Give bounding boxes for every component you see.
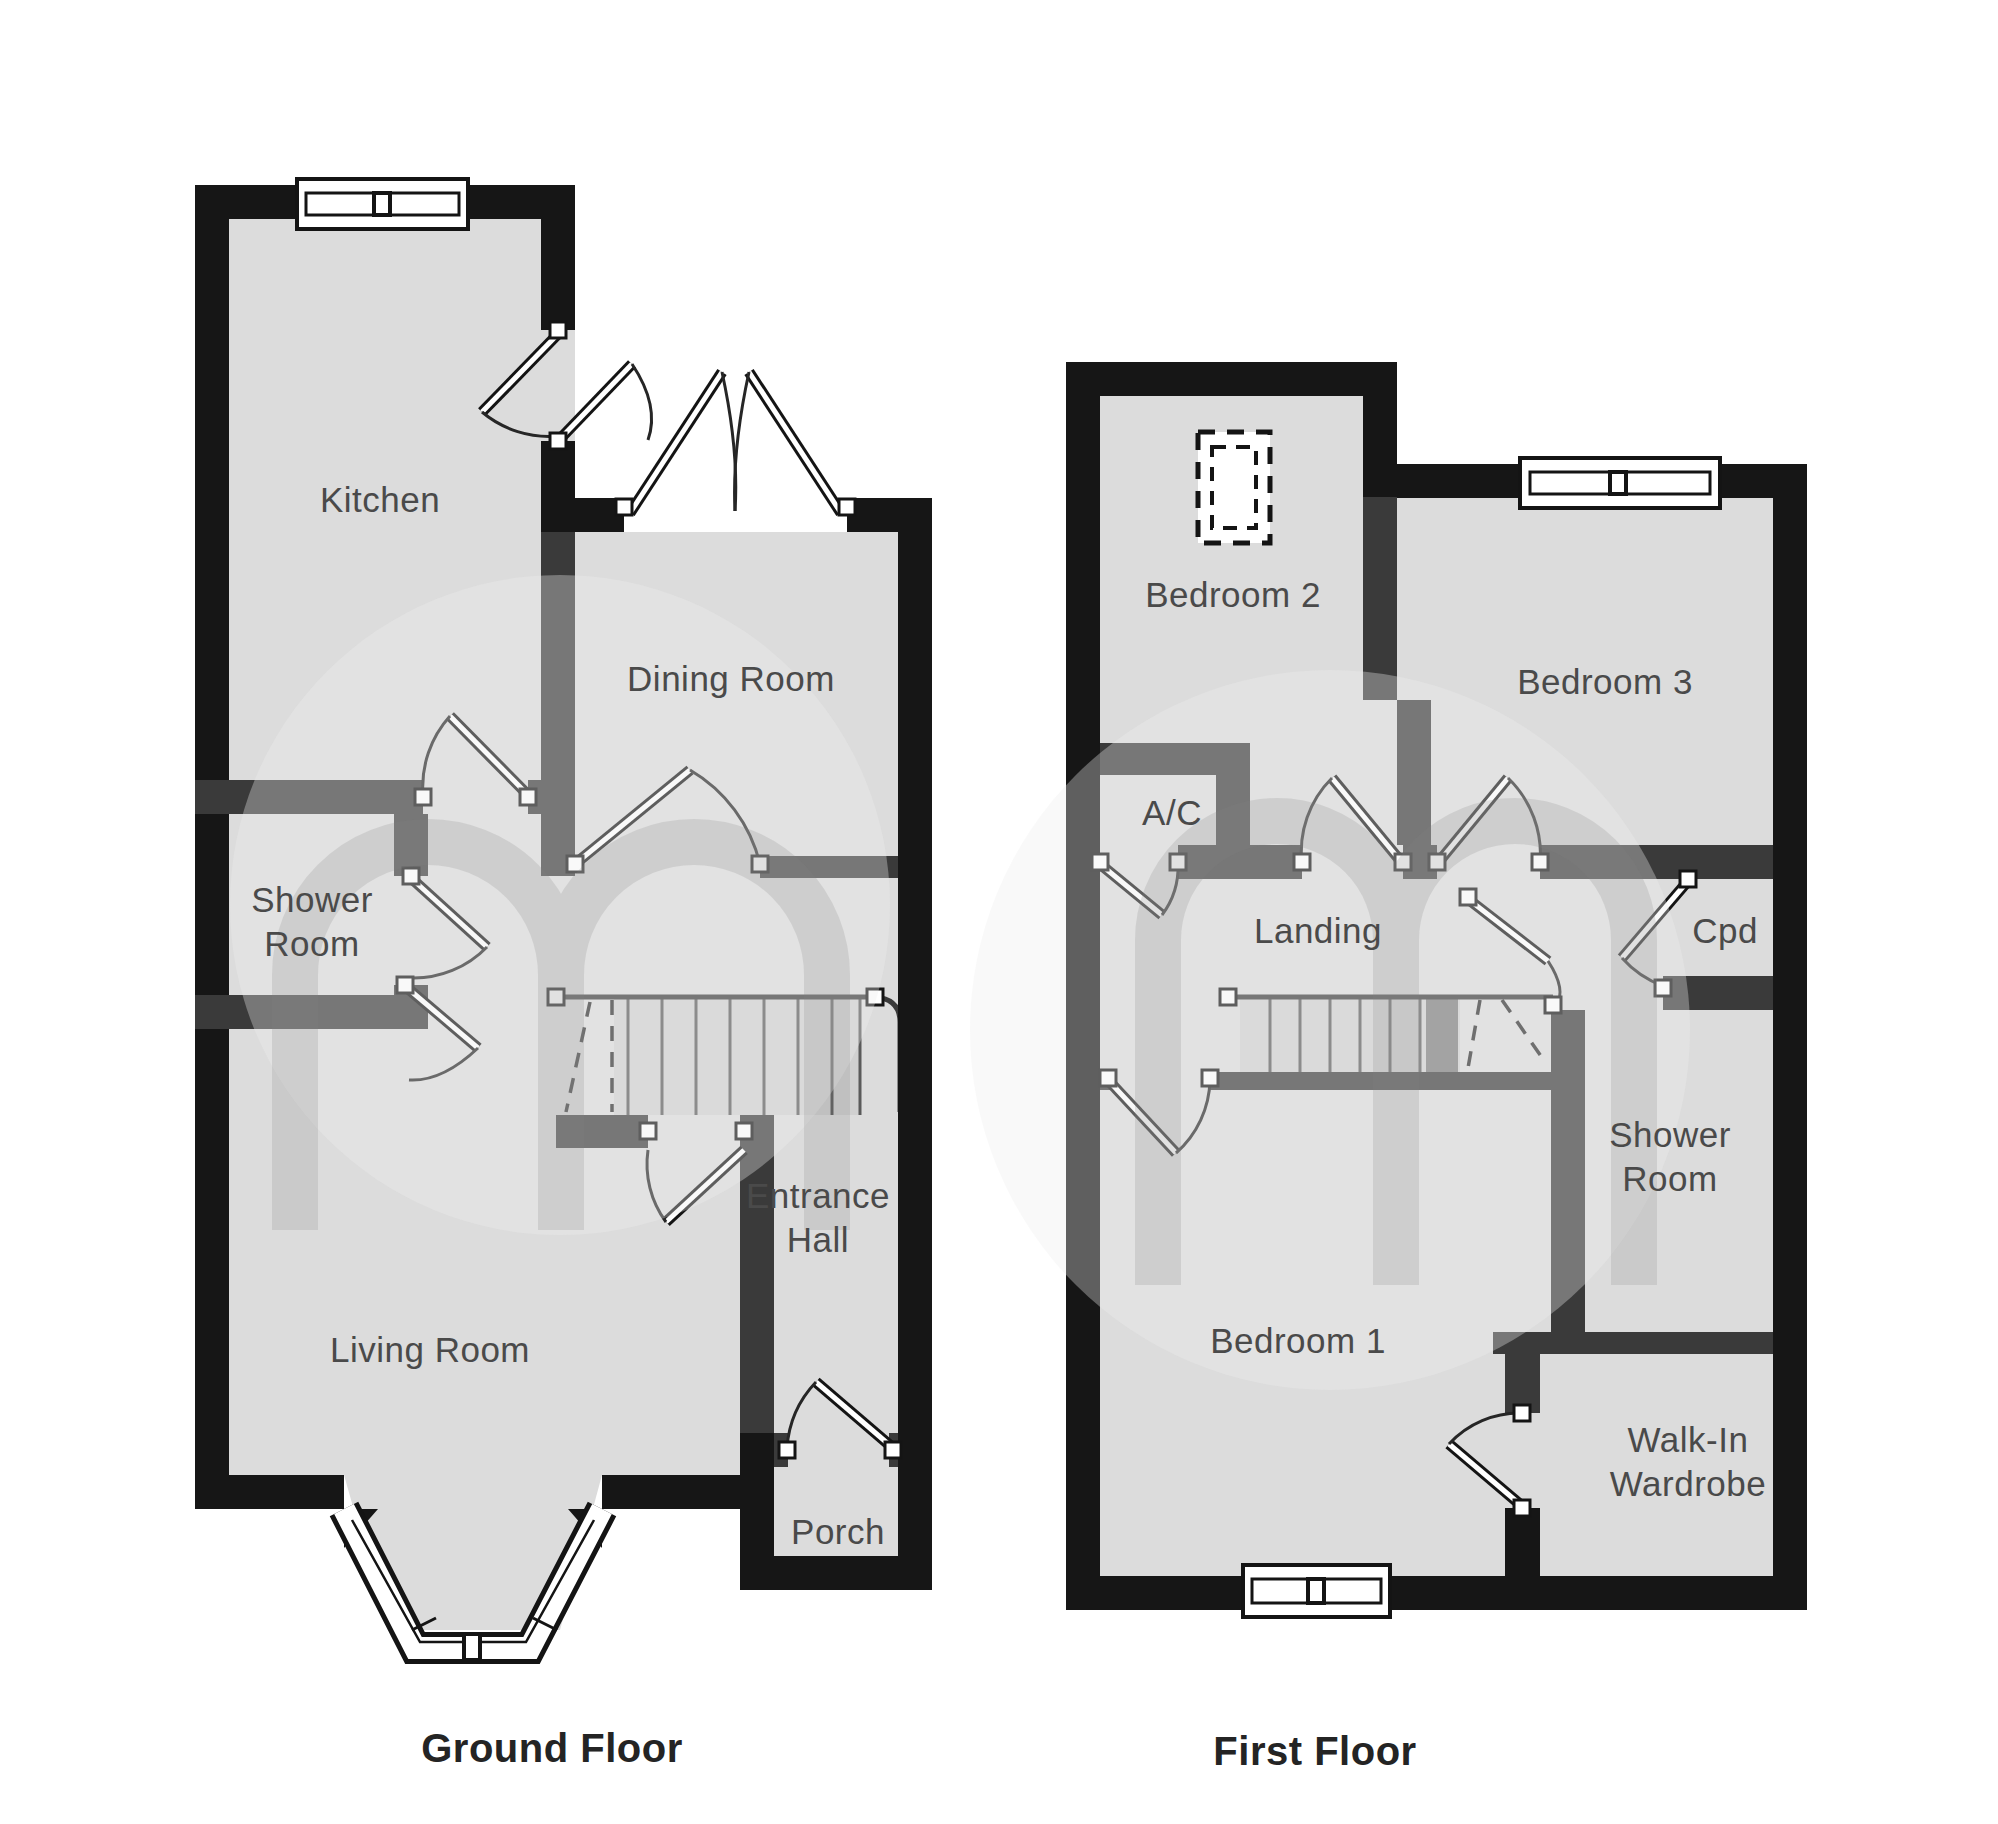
room-label-bedroom-1: Bedroom 1 [1210, 1321, 1386, 1360]
room-label-ac-cupboard: A/C [1142, 793, 1202, 832]
room-label-kitchen: Kitchen [320, 480, 440, 519]
watermark-first [970, 670, 1690, 1390]
room-label-cpd: Cpd [1692, 911, 1758, 950]
floorplan-page: KitchenDining RoomShowerRoomEntranceHall… [0, 0, 1998, 1824]
floorplan-svg: KitchenDining RoomShowerRoomEntranceHall… [0, 0, 1998, 1824]
bedroom1-window [1243, 1565, 1390, 1617]
bedroom2-roof-window [1198, 432, 1270, 543]
room-label-dining-room: Dining Room [627, 659, 835, 698]
caption-first-floor: First Floor [1213, 1729, 1416, 1773]
room-label-bedroom-3: Bedroom 3 [1517, 662, 1693, 701]
wardrobe-floor [1540, 1350, 1773, 1576]
room-label-landing: Landing [1254, 911, 1382, 950]
room-label-living-room: Living Room [330, 1330, 530, 1369]
room-label-bedroom-2: Bedroom 2 [1145, 575, 1321, 614]
room-label-porch: Porch [791, 1512, 885, 1551]
bedroom3-window [1520, 458, 1720, 508]
kitchen-window [297, 179, 468, 229]
caption-ground-floor: Ground Floor [421, 1726, 683, 1770]
